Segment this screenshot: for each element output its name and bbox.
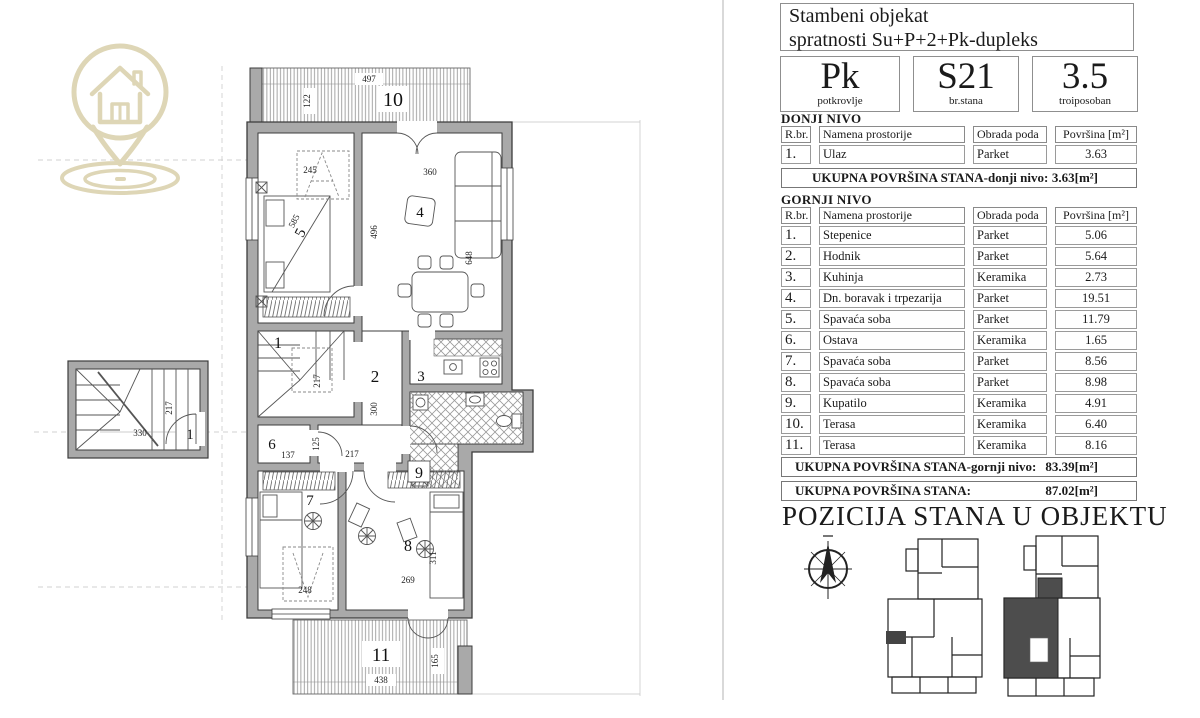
lower-level-total: UKUPNA POVRŠINA STANA-donji nivo: 3.63[m… bbox=[781, 168, 1137, 188]
badge-rooms-label: troiposoban bbox=[1033, 96, 1137, 107]
dim-438: 438 bbox=[374, 675, 388, 685]
grand-total-value: 87.02[m²] bbox=[1045, 483, 1098, 499]
dim-217a: 217 bbox=[312, 374, 322, 388]
grand-total-label: UKUPNA POVRŠINA STANA: bbox=[795, 483, 971, 499]
dim-125: 125 bbox=[311, 437, 321, 451]
badge-floor: Pk potkrovlje bbox=[780, 56, 900, 112]
bed-room7 bbox=[260, 492, 302, 588]
dim-217c: 217 bbox=[164, 401, 174, 415]
badge-floor-label: potkrovlje bbox=[781, 96, 899, 107]
row-number: 3. bbox=[781, 268, 811, 287]
row-number: 1. bbox=[781, 145, 811, 164]
lower-level-stairs bbox=[68, 361, 208, 458]
table-cell: Spavaća soba bbox=[819, 310, 965, 329]
table-cell: Keramika bbox=[973, 394, 1047, 413]
row-number: 5. bbox=[781, 310, 811, 329]
row-number: 10. bbox=[781, 415, 811, 434]
column-header: R.br. bbox=[781, 207, 811, 224]
row-number: 9. bbox=[781, 394, 811, 413]
upper-total-value: 83.39[m²] bbox=[1045, 459, 1098, 475]
table-cell: 19.51 bbox=[1055, 289, 1137, 308]
table-cell: Parket bbox=[973, 145, 1047, 164]
room-label-7: 7 bbox=[306, 493, 314, 509]
table-cell: Kupatilo bbox=[819, 394, 965, 413]
compass-north-icon bbox=[796, 533, 860, 605]
radiator-room7 bbox=[263, 472, 335, 490]
building-position-plan-b bbox=[994, 534, 1112, 706]
column-header: Namena prostorije bbox=[819, 126, 965, 143]
row-number: 4. bbox=[781, 289, 811, 308]
floor-plan-svg: 10 5 4 1 2 3 6 9 7 8 11 1 497 122 245 58… bbox=[0, 0, 722, 718]
bed-room8 bbox=[430, 492, 463, 598]
upper-level-table: R.br.Namena prostorijeObrada podaPovršin… bbox=[781, 207, 1137, 455]
table-cell: 8.98 bbox=[1055, 373, 1137, 392]
table-cell: Parket bbox=[973, 289, 1047, 308]
room-label-2: 2 bbox=[371, 367, 380, 386]
title-line-1: Stambeni objekat bbox=[789, 5, 1125, 29]
room-label-1: 1 bbox=[274, 335, 282, 352]
dim-122: 122 bbox=[302, 94, 312, 108]
badge-rooms-value: 3.5 bbox=[1033, 57, 1137, 97]
table-cell: 3.63 bbox=[1055, 145, 1137, 164]
table-cell: 8.16 bbox=[1055, 436, 1137, 455]
bed-room5 bbox=[256, 182, 330, 307]
table-cell: 5.06 bbox=[1055, 226, 1137, 245]
badge-apartment-label: br.stana bbox=[914, 96, 1018, 107]
table-cell: 8.56 bbox=[1055, 352, 1137, 371]
column-header: Površina [m²] bbox=[1055, 126, 1137, 143]
row-number: 6. bbox=[781, 331, 811, 350]
row-number: 7. bbox=[781, 352, 811, 371]
grand-total: UKUPNA POVRŠINA STANA: 87.02[m²] bbox=[781, 481, 1137, 501]
table-cell: 5.64 bbox=[1055, 247, 1137, 266]
lower-total-label: UKUPNA POVRŠINA STANA-donji nivo: bbox=[812, 170, 1048, 186]
apartment-highlight bbox=[1004, 578, 1062, 678]
dim-300: 300 bbox=[369, 402, 379, 416]
row-number: 11. bbox=[781, 436, 811, 455]
table-cell: Kuhinja bbox=[819, 268, 965, 287]
floor-plan-drawing: 10 5 4 1 2 3 6 9 7 8 11 1 497 122 245 58… bbox=[0, 0, 722, 718]
badge-apartment-number: S21 br.stana bbox=[913, 56, 1019, 112]
position-heading: POZICIJA STANA U OBJEKTU bbox=[782, 501, 1168, 532]
dim-311: 311 bbox=[428, 551, 438, 564]
floor-plan-sheet: 10 5 4 1 2 3 6 9 7 8 11 1 497 122 245 58… bbox=[0, 0, 1200, 718]
badge-floor-value: Pk bbox=[781, 57, 899, 97]
building-position-plan-a bbox=[882, 537, 988, 703]
dim-269: 269 bbox=[401, 575, 415, 585]
upper-total-label: UKUPNA POVRŠINA STANA-gornji nivo: bbox=[795, 459, 1036, 475]
lower-total-value: 3.63[m²] bbox=[1052, 170, 1098, 186]
table-cell: Keramika bbox=[973, 415, 1047, 434]
table-cell: Spavaća soba bbox=[819, 352, 965, 371]
column-header: Namena prostorije bbox=[819, 207, 965, 224]
table-cell: Terasa bbox=[819, 436, 965, 455]
table-cell: Dn. boravak i trpezarija bbox=[819, 289, 965, 308]
dim-360: 360 bbox=[423, 167, 437, 177]
dim-245: 245 bbox=[303, 165, 317, 175]
badge-rooms: 3.5 troiposoban bbox=[1032, 56, 1138, 112]
table-cell: 6.40 bbox=[1055, 415, 1137, 434]
upper-level-heading: GORNJI NIVO bbox=[781, 192, 872, 208]
table-cell: Parket bbox=[973, 247, 1047, 266]
dim-648: 648 bbox=[464, 251, 474, 265]
table-cell: Keramika bbox=[973, 268, 1047, 287]
wardrobe-room5 bbox=[263, 297, 350, 317]
lower-level-table: R.br.Namena prostorijeObrada podaPovršin… bbox=[781, 126, 1137, 164]
table-cell: Spavaća soba bbox=[819, 373, 965, 392]
row-number: 1. bbox=[781, 226, 811, 245]
room-label-lower-1: 1 bbox=[186, 427, 194, 443]
room-label-9: 9 bbox=[415, 465, 423, 482]
table-cell: 4.91 bbox=[1055, 394, 1137, 413]
dim-497: 497 bbox=[362, 74, 376, 84]
table-cell: Hodnik bbox=[819, 247, 965, 266]
room-label-3: 3 bbox=[417, 369, 425, 385]
row-number: 2. bbox=[781, 247, 811, 266]
sofa bbox=[455, 152, 501, 258]
table-cell: 1.65 bbox=[1055, 331, 1137, 350]
table-cell: 11.79 bbox=[1055, 310, 1137, 329]
dim-496: 496 bbox=[369, 225, 379, 239]
table-cell: Keramika bbox=[973, 436, 1047, 455]
room-label-6: 6 bbox=[268, 437, 276, 453]
table-cell: Parket bbox=[973, 373, 1047, 392]
badge-apartment-value: S21 bbox=[914, 57, 1018, 97]
table-cell: 2.73 bbox=[1055, 268, 1137, 287]
room-label-8: 8 bbox=[404, 538, 412, 555]
column-header: Površina [m²] bbox=[1055, 207, 1137, 224]
title-line-2: spratnosti Su+P+2+Pk-dupleks bbox=[789, 29, 1125, 53]
upper-level-total: UKUPNA POVRŠINA STANA-gornji nivo: 83.39… bbox=[781, 457, 1137, 477]
table-cell: Parket bbox=[973, 310, 1047, 329]
column-header: Obrada poda bbox=[973, 207, 1047, 224]
row-number: 8. bbox=[781, 373, 811, 392]
room-label-terrace10: 10 bbox=[383, 89, 403, 111]
table-cell: Parket bbox=[973, 226, 1047, 245]
table-cell: Terasa bbox=[819, 415, 965, 434]
info-panel: Stambeni objekat spratnosti Su+P+2+Pk-du… bbox=[724, 0, 1200, 718]
agency-logo bbox=[62, 46, 178, 193]
table-cell: Stepenice bbox=[819, 226, 965, 245]
dim-137: 137 bbox=[281, 450, 295, 460]
column-header: Obrada poda bbox=[973, 126, 1047, 143]
lower-level-heading: DONJI NIVO bbox=[781, 111, 861, 127]
dim-217b: 217 bbox=[345, 449, 359, 459]
table-cell: Parket bbox=[973, 352, 1047, 371]
room-label-terrace11: 11 bbox=[372, 645, 390, 666]
dim-330: 330 bbox=[133, 428, 147, 438]
table-cell: Keramika bbox=[973, 331, 1047, 350]
dim-248: 248 bbox=[298, 585, 312, 595]
building-title: Stambeni objekat spratnosti Su+P+2+Pk-du… bbox=[780, 3, 1134, 51]
room-label-4: 4 bbox=[416, 205, 424, 221]
table-cell: Ulaz bbox=[819, 145, 965, 164]
table-cell: Ostava bbox=[819, 331, 965, 350]
dim-165: 165 bbox=[430, 654, 440, 668]
column-header: R.br. bbox=[781, 126, 811, 143]
